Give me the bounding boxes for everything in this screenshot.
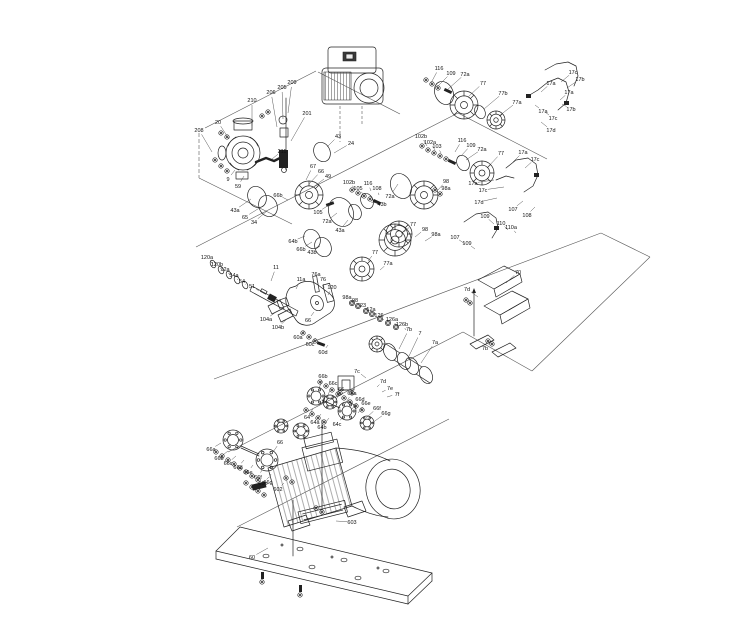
leader-line-66d xyxy=(241,460,244,463)
leader-line-17a xyxy=(513,156,519,162)
part-number-43b: 43b xyxy=(307,250,316,256)
part-number-66c: 66c xyxy=(224,461,233,467)
leader-line-72a xyxy=(466,152,478,160)
leader-line-66e xyxy=(251,465,253,468)
part-number-34: 34 xyxy=(251,220,257,226)
leader-line-24 xyxy=(334,146,347,153)
leader-line-116 xyxy=(431,72,437,83)
o-ring-set xyxy=(244,78,487,259)
part-number-77: 77 xyxy=(410,222,416,228)
leader-line-17c xyxy=(488,187,504,189)
part-number-66c: 66c xyxy=(329,381,338,387)
part-number-77: 77 xyxy=(372,250,378,256)
leader-line-109 xyxy=(489,219,494,224)
leader-line-43a xyxy=(343,220,348,226)
part-number-116: 116 xyxy=(458,138,467,144)
part-number-109: 109 xyxy=(480,214,489,220)
diagram-canvas: 2082021020620520920121195943a653466b4324… xyxy=(0,0,752,632)
part-number-116: 116 xyxy=(364,181,373,187)
part-number-98a: 98a xyxy=(431,232,441,238)
part-number-77: 77 xyxy=(498,151,504,157)
part-number-98a: 98a xyxy=(441,186,451,192)
part-number-108: 108 xyxy=(372,186,381,192)
part-number-17a: 17a xyxy=(468,181,478,187)
part-number-109: 109 xyxy=(446,71,455,77)
leader-line-54a xyxy=(237,279,238,280)
part-number-60a: 60a xyxy=(293,335,303,341)
part-number-205: 205 xyxy=(277,85,286,91)
part-number-66b: 66b xyxy=(296,247,305,253)
part-number-64b: 64b xyxy=(317,425,326,431)
leader-line-17c xyxy=(525,162,531,168)
leader-line-11a xyxy=(296,283,299,289)
leader-line-110a xyxy=(514,231,516,233)
flange-set-mid xyxy=(274,387,374,439)
part-number-66: 66 xyxy=(338,387,344,393)
leader-line-201 xyxy=(291,117,305,141)
part-number-109: 109 xyxy=(466,143,475,149)
leader-line-72a xyxy=(447,77,461,90)
part-number-77: 77 xyxy=(480,81,486,87)
part-number-208: 208 xyxy=(194,128,203,134)
part-number-77a: 77a xyxy=(512,100,522,106)
leader-line-108 xyxy=(378,193,379,195)
part-number-17a: 17a xyxy=(564,90,574,96)
part-number-7: 7 xyxy=(418,331,421,337)
part-number-9: 9 xyxy=(226,177,229,183)
leader-line-107 xyxy=(517,201,523,206)
part-number-104a: 104a xyxy=(260,317,273,323)
leader-line-17a xyxy=(535,105,539,108)
leader-line-7 xyxy=(409,338,418,356)
leader-line-67 xyxy=(306,170,311,180)
leader-line-66c xyxy=(232,456,236,460)
sleeve-cylinders xyxy=(381,341,435,385)
part-number-17c: 17c xyxy=(479,188,488,194)
leader-line-205 xyxy=(282,92,283,119)
part-number-54: 54 xyxy=(239,279,245,285)
part-number-103: 103 xyxy=(432,144,441,150)
leader-line-206 xyxy=(272,97,277,127)
part-number-17a: 17a xyxy=(538,109,548,115)
part-number-66e: 66e xyxy=(361,401,370,407)
leader-line-7e xyxy=(382,390,386,392)
part-number-64b: 64b xyxy=(288,239,297,245)
leader-line-17d xyxy=(484,198,497,201)
part-number-64c: 64c xyxy=(333,422,342,428)
part-number-17a: 17a xyxy=(518,150,528,156)
leader-line-49 xyxy=(312,179,324,188)
leader-line-60 xyxy=(256,548,268,555)
part-number-126: 126 xyxy=(374,313,383,319)
part-number-66d: 66d xyxy=(233,465,242,471)
leader-line-109 xyxy=(437,77,447,87)
leader-line-66f xyxy=(260,470,262,473)
leader-line-72a xyxy=(331,213,337,218)
part-number-51: 51 xyxy=(249,284,255,290)
part-number-66e: 66e xyxy=(243,470,252,476)
leader-line-11 xyxy=(271,272,274,281)
part-number-7d: 7d xyxy=(464,287,470,293)
part-number-17b: 17b xyxy=(566,107,575,113)
part-number-66b: 66b xyxy=(318,374,327,380)
part-number-602: 602 xyxy=(273,487,282,493)
leader-line-72a xyxy=(393,184,398,192)
part-number-43a: 43a xyxy=(335,228,345,234)
part-number-77a: 77a xyxy=(383,261,393,267)
part-number-209: 209 xyxy=(287,80,296,86)
leader-line-77a xyxy=(499,105,513,116)
leader-line-17c xyxy=(561,75,569,82)
part-number-72a: 72a xyxy=(477,147,487,153)
leader-line-98 xyxy=(415,232,421,237)
leader-line-116 xyxy=(370,188,371,191)
part-number-110a: 110a xyxy=(505,225,518,231)
part-number-98: 98 xyxy=(443,179,449,185)
part-number-7f: 7f xyxy=(395,392,400,398)
part-number-64: 64 xyxy=(304,415,310,421)
part-number-105: 105 xyxy=(353,186,362,192)
part-number-49: 49 xyxy=(325,174,331,180)
part-number-43: 43 xyxy=(335,134,341,140)
part-number-98: 98 xyxy=(422,227,428,233)
leader-line-66 xyxy=(309,175,318,184)
leader-line-208 xyxy=(202,134,212,152)
leader-line-77 xyxy=(488,157,498,167)
leader-line-17d xyxy=(541,122,547,127)
part-number-66b: 66b xyxy=(214,456,223,462)
part-number-20: 20 xyxy=(215,120,221,126)
coupling-guards xyxy=(470,266,530,357)
part-number-72a: 72a xyxy=(385,194,395,200)
part-number-11a: 11a xyxy=(297,277,307,283)
leader-line-603 xyxy=(336,521,347,522)
part-number-17c: 17c xyxy=(569,70,578,76)
part-number-72a: 72a xyxy=(460,72,470,78)
part-number-17a: 17a xyxy=(546,81,556,87)
exploded-parts-diagram: 2082021020620520920121195943a653466b4324… xyxy=(0,0,752,632)
part-number-17c: 17c xyxy=(549,116,558,122)
leader-line-70 xyxy=(506,275,514,283)
part-number-105: 105 xyxy=(313,210,322,216)
part-number-43b: 43b xyxy=(377,202,386,208)
leader-line-7f xyxy=(387,395,392,397)
part-number-120: 120 xyxy=(327,285,336,291)
leader-line-66 xyxy=(273,446,277,452)
leader-line-65 xyxy=(249,207,261,214)
leader-line-66a xyxy=(215,443,221,446)
part-number-7e: 7e xyxy=(387,386,393,392)
part-number-108: 108 xyxy=(522,213,531,219)
leader-line-77b xyxy=(484,96,499,109)
leader-line-9 xyxy=(231,170,235,175)
leader-line-17a xyxy=(560,95,565,100)
leader-line-66c xyxy=(328,388,331,395)
part-number-72a: 72a xyxy=(322,219,332,225)
part-number-7c: 7c xyxy=(354,369,360,375)
part-number-66b: 66b xyxy=(273,193,282,199)
leader-line-116 xyxy=(455,144,459,152)
part-number-66: 66 xyxy=(277,440,283,446)
part-number-120a: 120a xyxy=(201,255,214,261)
control-motor xyxy=(322,47,384,104)
part-number-104b: 104b xyxy=(272,325,284,331)
leader-line-66b xyxy=(223,451,228,455)
part-number-7b: 7b xyxy=(482,346,488,352)
leader-line-66a xyxy=(345,397,349,404)
pump-housing xyxy=(218,118,260,179)
part-number-60c: 60c xyxy=(306,342,315,348)
part-number-116: 116 xyxy=(435,66,444,72)
bearing-housing xyxy=(268,276,335,325)
part-number-66: 66 xyxy=(305,318,311,324)
leader-line-7a xyxy=(421,346,432,363)
part-number-603: 603 xyxy=(347,520,356,526)
part-number-206: 206 xyxy=(266,90,275,96)
leader-line-66f xyxy=(366,411,373,418)
leader-line-109 xyxy=(461,149,468,156)
part-number-76: 76 xyxy=(320,277,326,283)
part-number-107: 107 xyxy=(508,207,517,213)
leader-line-108 xyxy=(531,207,535,211)
baseplate xyxy=(216,527,432,604)
leader-line-103 xyxy=(439,150,441,153)
leader-line-209 xyxy=(288,87,291,113)
part-number-98: 98 xyxy=(352,298,358,304)
leader-line-7c xyxy=(361,374,366,378)
part-number-211: 211 xyxy=(278,149,287,155)
part-number-107: 107 xyxy=(450,235,459,241)
leader-line-105 xyxy=(322,205,329,209)
part-number-66f: 66f xyxy=(373,406,381,412)
part-number-24: 24 xyxy=(348,141,354,147)
leader-line-66b xyxy=(305,242,312,246)
part-number-7a: 7a xyxy=(432,340,439,346)
part-number-67: 67 xyxy=(310,164,316,170)
leader-line-105 xyxy=(361,192,363,194)
part-number-59: 59 xyxy=(235,184,241,190)
part-number-110: 110 xyxy=(497,221,506,227)
part-number-109: 109 xyxy=(462,241,471,247)
part-number-210: 210 xyxy=(247,98,256,104)
part-number-70: 70 xyxy=(515,270,521,276)
part-number-60b: 60b xyxy=(258,481,267,487)
part-number-17d: 17d xyxy=(474,200,483,206)
sensor-assembly xyxy=(256,98,288,173)
part-number-11: 11 xyxy=(273,265,279,271)
part-number-7d: 7d xyxy=(380,379,386,385)
part-number-60d: 60d xyxy=(318,350,327,356)
leader-line-109 xyxy=(471,246,475,249)
part-number-66: 66 xyxy=(318,169,324,175)
leader-line-66 xyxy=(311,312,314,316)
leader-line-60d xyxy=(326,345,328,348)
part-number-43a: 43a xyxy=(230,208,240,214)
part-number-66g: 66g xyxy=(381,411,390,417)
leader-line-7b xyxy=(399,333,407,349)
part-number-7b: 7b xyxy=(406,327,412,333)
part-number-60: 60 xyxy=(249,555,255,561)
part-number-17c: 17c xyxy=(531,157,540,163)
leader-line-43 xyxy=(327,140,334,147)
part-number-65: 65 xyxy=(242,215,248,221)
part-number-66a: 66a xyxy=(206,447,216,453)
part-number-77b: 77b xyxy=(498,91,507,97)
part-number-17d: 17d xyxy=(546,128,555,134)
part-number-17b: 17b xyxy=(575,77,584,83)
part-number-23: 23 xyxy=(360,303,366,309)
part-number-201: 201 xyxy=(302,111,311,117)
leader-line-66b xyxy=(282,197,288,200)
